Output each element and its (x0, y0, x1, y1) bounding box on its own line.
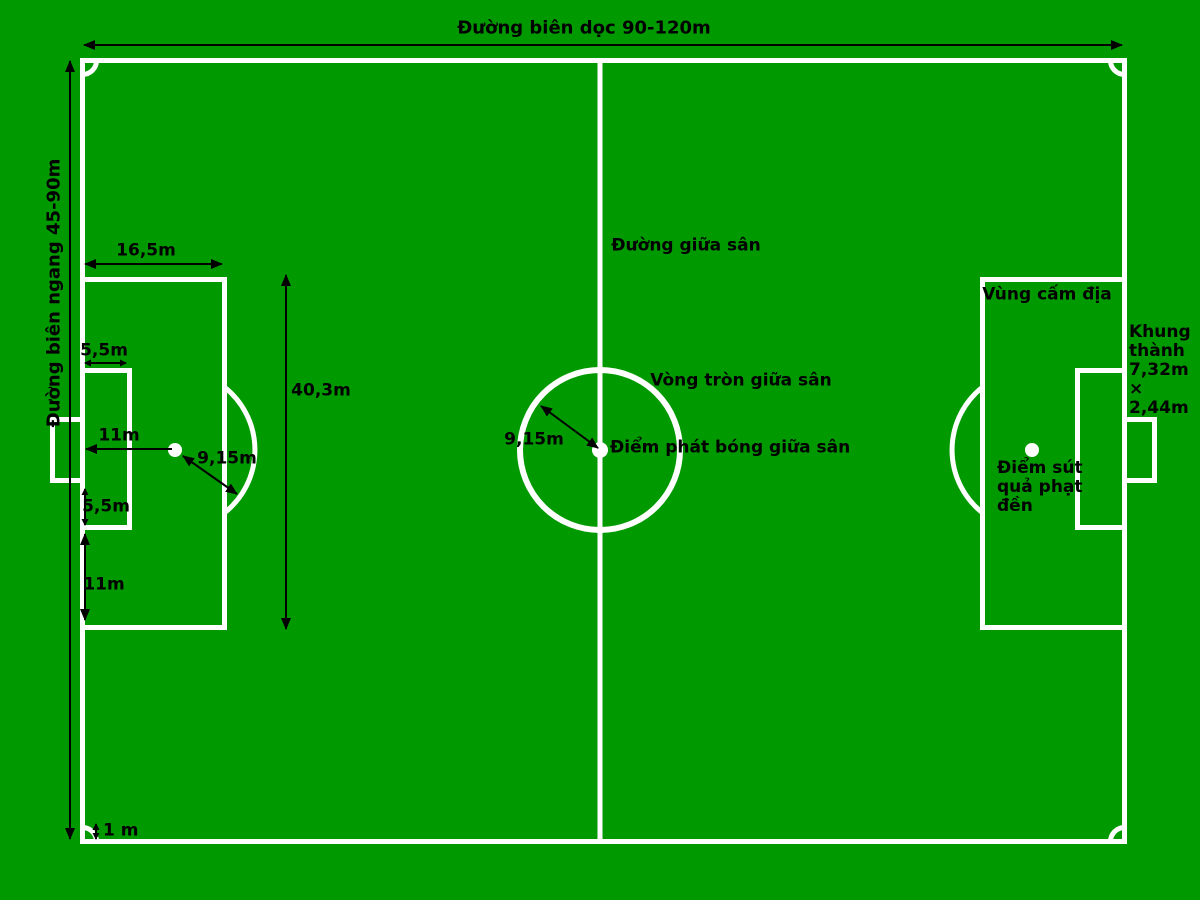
penalty-spot-right (1025, 443, 1039, 457)
penalty-area-right (983, 280, 1125, 628)
halfway-line-label: Đường giữa sân (611, 237, 760, 256)
goal-right (1125, 420, 1155, 481)
center-circle-radius-label: 9,15m (504, 431, 564, 450)
goal-area-right (1078, 371, 1125, 528)
penalty-spot-line-2: quả phạt (997, 478, 1083, 497)
goal-frame-line-1: Khung (1129, 323, 1191, 342)
center-circle-label: Vòng tròn giữa sân (650, 372, 832, 391)
pitch-drawing (0, 0, 1200, 900)
touchline-label: Đường biên dọc 90-120m (457, 19, 711, 38)
penalty-spot-line-1: Điểm sút (997, 459, 1083, 478)
goal-frame-line-2: thành (1129, 342, 1191, 361)
penalty-arc-radius-label: 9,15m (197, 450, 257, 469)
center-spot-label: Điểm phát bóng giữa sân (610, 439, 850, 458)
penalty-spot-name-label: Điểm sút quả phạt đền (997, 459, 1083, 516)
goal-frame-line-5: 2,44m (1129, 399, 1191, 418)
goal-left (53, 420, 83, 481)
goal-frame-label: Khung thành 7,32m × 2,44m (1129, 323, 1191, 418)
goal-area-depth-label: 5,5m (80, 342, 128, 361)
penalty-area-name-label: Vùng cấm địa (982, 286, 1112, 305)
penalty-area-depth-label: 16,5m (116, 242, 176, 261)
penalty-spot-line-3: đền (997, 497, 1083, 516)
corner-arc-radius-label: 1 m (103, 822, 138, 841)
goal-frame-line-3: 7,32m (1129, 361, 1191, 380)
goal-area-to-penalty-edge-label: 11m (83, 576, 124, 595)
dimension-arrows (70, 45, 1122, 839)
goal-area-side-label: 5,5m (82, 498, 130, 517)
penalty-mark-distance-label: 11m (98, 427, 139, 446)
goal-frame-line-4: × (1129, 380, 1191, 399)
pitch-diagram: Đường biên dọc 90-120m Đường biên ngang … (0, 0, 1200, 900)
penalty-area-width-label: 40,3m (291, 382, 351, 401)
penalty-arc-right (952, 387, 982, 513)
goal-line-label: Đường biên ngang 45-90m (45, 159, 64, 428)
